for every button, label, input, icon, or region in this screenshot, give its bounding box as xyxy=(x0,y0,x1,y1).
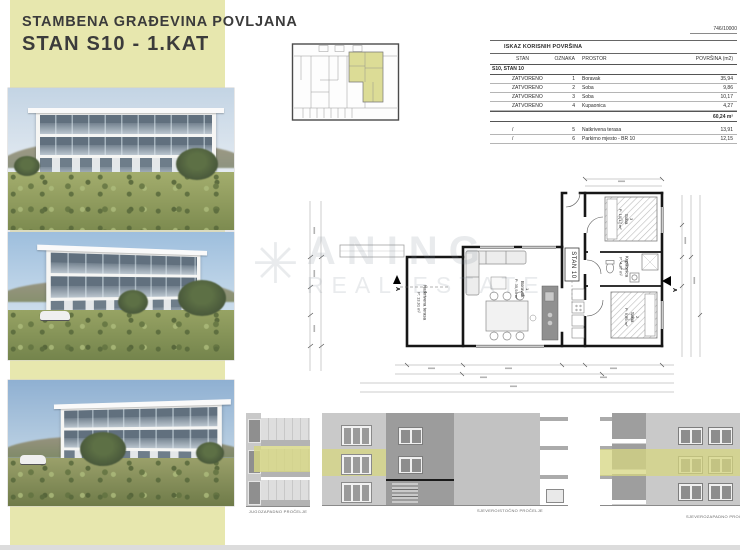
facade-section xyxy=(454,413,540,505)
subtotal-value: 60,24 m² xyxy=(680,114,737,120)
project-title: STAMBENA GRAĐEVINA POVLJANA xyxy=(22,14,342,30)
vegetation xyxy=(8,458,234,506)
building-render-2 xyxy=(8,232,234,360)
table-subtotal-row: 60,24 m² xyxy=(490,111,737,122)
table-row: /5 Natkrivena terasa13,91 xyxy=(490,126,737,135)
table-section-header: S10, STAN 10 xyxy=(490,65,737,75)
floor-plan: ✳ ANING REAL ESTATE Natkrivena terasa P:… xyxy=(300,165,740,400)
tree xyxy=(14,156,40,176)
table-header: STAN OZNAKA PROSTOR POVRŠINA (m2) xyxy=(490,54,737,65)
room-label-soba3: 3 Soba P: 10,17 m² xyxy=(618,199,634,239)
highlighted-floor xyxy=(600,449,740,476)
unit-label: STAN 10 xyxy=(568,245,576,285)
canopy-line xyxy=(386,479,454,481)
car xyxy=(20,455,46,464)
entry-box xyxy=(546,489,564,503)
elevation-label: JUGOZAPADNO PROČELJE xyxy=(246,509,310,514)
building-render-3 xyxy=(8,380,234,506)
room-label-boravak: 1 Boravak P: 35,94 m² xyxy=(514,269,530,309)
table-row: ZATVORENO2 Soba9,86 xyxy=(490,84,737,93)
tree xyxy=(196,442,224,464)
plan-sheet: STAMBENA GRAĐEVINA POVLJANA STAN S10 - 1… xyxy=(0,0,740,550)
table-title: ISKAZ KORISNIH POVRŠINA xyxy=(490,40,737,54)
elevation-label: SJEVEROZAPADNO PROČELJE xyxy=(686,514,740,519)
watermark-starburst-icon: ✳ xyxy=(252,236,299,292)
tree xyxy=(80,432,126,466)
section-marker-a-right: A xyxy=(671,285,677,295)
stairs xyxy=(392,483,418,503)
elevation-northwest xyxy=(600,413,740,506)
tree xyxy=(176,148,218,180)
sheet-number: 746/10000 xyxy=(690,26,737,34)
elevation-northeast xyxy=(322,413,568,506)
room-label-terasa: Natkrivena terasa P: 13,91 m² xyxy=(416,283,427,323)
section-marker-a-left: A xyxy=(394,284,400,294)
tree xyxy=(118,290,148,314)
room-label-kupaonica: Kupaonica P: 4,27 m² xyxy=(618,247,629,287)
vegetation xyxy=(8,172,234,230)
page-edge xyxy=(0,545,740,550)
elevation-label: SJEVEROISTOČNO PROČELJE xyxy=(420,508,600,513)
tree xyxy=(178,280,226,316)
table-row: ZATVORENO1 Boravak35,94 xyxy=(490,75,737,84)
highlighted-floor xyxy=(254,446,310,472)
car xyxy=(40,311,70,320)
balcony xyxy=(261,415,310,443)
room-label-soba2: 2 Soba P: 9,86 m² xyxy=(624,297,640,337)
key-plan xyxy=(291,40,403,128)
table-row: ZATVORENO4 Kupaonica4,27 xyxy=(490,102,737,111)
building-render-1 xyxy=(8,88,234,230)
elevation-southwest xyxy=(246,413,310,507)
table-row: /6 Parkirno mjesto - BR 1012,15 xyxy=(490,135,737,144)
area-table: ISKAZ KORISNIH POVRŠINA STAN OZNAKA PROS… xyxy=(490,40,737,144)
table-row: ZATVORENO3 Soba10,17 xyxy=(490,93,737,102)
